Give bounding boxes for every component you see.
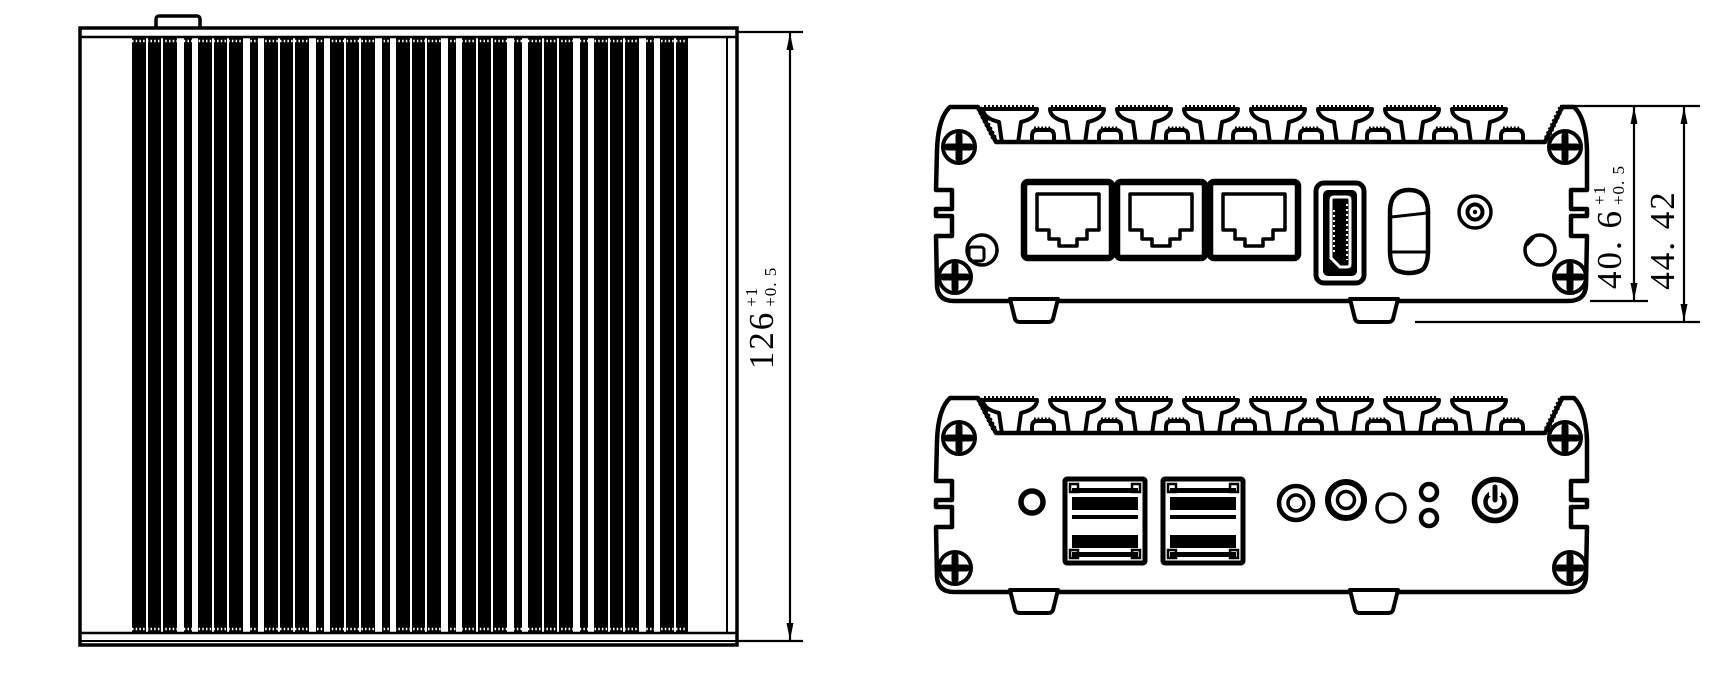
mic-hole — [1377, 494, 1405, 522]
dimension-label-126: 126 +1 +0. 5 — [742, 267, 782, 370]
dimension-value: 40. 6 — [1590, 209, 1630, 289]
dimension-tolerance: +1 +0. 5 — [1591, 165, 1628, 205]
audio-jack — [1279, 486, 1313, 520]
audio-jack — [1328, 482, 1364, 518]
antenna-hole — [967, 235, 997, 265]
usb-port — [1065, 479, 1145, 563]
dimension-value: 44. 42 — [1643, 190, 1683, 290]
dimension-label-40-6: 40. 6 +1 +0. 5 — [1590, 165, 1630, 289]
fin-teeth-row — [983, 398, 1523, 434]
usb-port — [1163, 479, 1243, 563]
rj45-port — [1210, 182, 1298, 258]
technical-drawing-canvas: 126 +1 +0. 5 40. 6 +1 +0. 5 44. 42 — [0, 0, 1723, 689]
rear-panel-view — [936, 107, 1587, 322]
dimension-tolerance: +1 +0. 5 — [743, 267, 780, 307]
rj45-port — [1024, 182, 1112, 258]
fin-teeth-row — [983, 107, 1523, 143]
front-panel-view — [936, 398, 1587, 613]
dimension-value: 126 — [742, 311, 782, 370]
drawing-svg — [0, 0, 1723, 689]
pinhole — [1021, 491, 1043, 513]
power-button — [1475, 480, 1516, 521]
dimension-label-44-42: 44. 42 — [1643, 190, 1683, 290]
vertical-port — [1390, 190, 1428, 273]
fin-pattern — [130, 37, 688, 633]
led-indicator — [1421, 510, 1437, 526]
displayport-port — [1316, 183, 1364, 283]
dc-jack — [1459, 196, 1491, 228]
led-indicator — [1421, 484, 1437, 500]
antenna-hole — [1525, 235, 1555, 265]
heatsink-top-view — [80, 16, 737, 645]
rj45-port — [1117, 182, 1205, 258]
